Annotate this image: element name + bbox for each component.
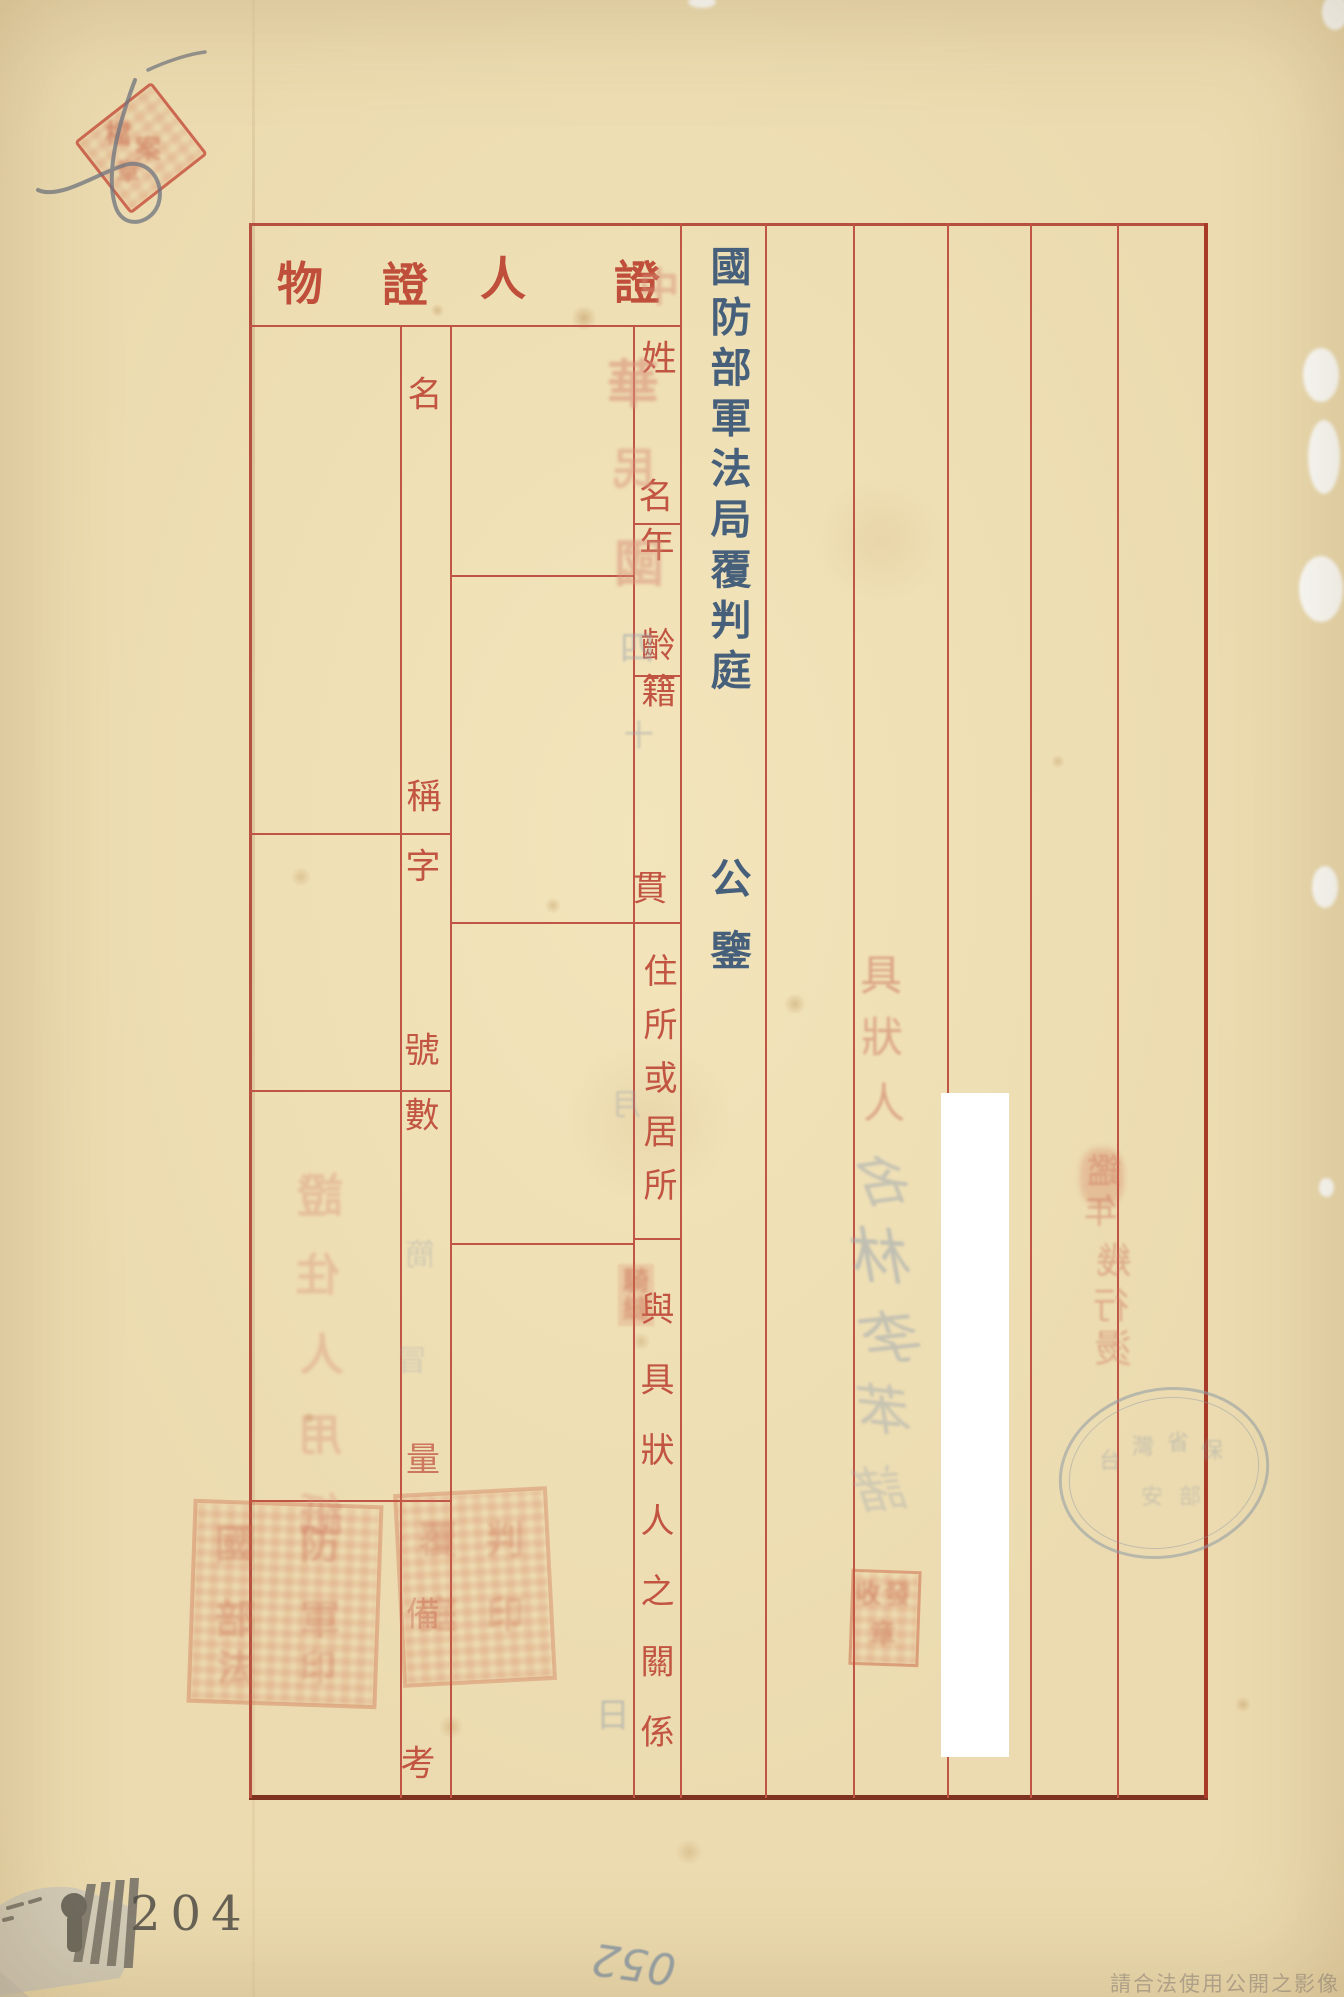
glyph: 台 [1099, 1451, 1121, 1473]
column-line [765, 223, 767, 1798]
age-spot [544, 898, 562, 913]
paper-damage [1308, 420, 1340, 494]
glyph: 冒 [397, 1347, 427, 1377]
glyph: 人 [863, 1083, 905, 1125]
glyph: 鑑 [1087, 1155, 1121, 1189]
paper-damage [1299, 556, 1343, 622]
court-salutation: 公鑒 [706, 857, 747, 1001]
glyph: 證 [382, 262, 428, 308]
label-tick [633, 523, 682, 525]
glyph: 判 [486, 1521, 524, 1559]
glyph: 證 [297, 1173, 343, 1219]
glyph: 部 [1179, 1487, 1201, 1509]
age-stain [810, 480, 950, 600]
column-line [400, 325, 402, 1798]
glyph: 幾 [1096, 1244, 1132, 1280]
glyph: 縫 [623, 1297, 649, 1323]
glyph: 部 [215, 1600, 255, 1640]
fold-crease [252, 0, 255, 1997]
glyph: 物 [277, 261, 323, 307]
glyph: 稱 [406, 781, 441, 816]
glyph: 灣 [1132, 1437, 1154, 1459]
glyph: 號 [404, 1035, 439, 1070]
glyph: 行 [1093, 1289, 1129, 1325]
column-line [450, 325, 452, 1798]
glyph: 四 [620, 632, 654, 666]
row-line [250, 1500, 452, 1502]
glyph: 量 [406, 1443, 440, 1477]
glyph: 住 [296, 1254, 340, 1298]
header-underline [250, 325, 682, 327]
glyph: 省 [1167, 1433, 1189, 1455]
glyph: 名 [857, 1152, 918, 1213]
glyph: 年 [1084, 1195, 1118, 1229]
label-tick [633, 1238, 682, 1240]
copyright-watermark: 請合法使用公開之影像 [1110, 1968, 1340, 1997]
glyph: 李 [864, 1306, 928, 1370]
glyph: 印 [486, 1596, 524, 1634]
glyph: 騎 [623, 1269, 649, 1295]
column-line [1117, 223, 1119, 1798]
glyph: 月 [611, 1091, 641, 1121]
glyph: 燙 [1094, 1330, 1132, 1368]
paper-damage [1303, 348, 1339, 402]
glyph: 日 [596, 1699, 630, 1733]
glyph: 安 [1141, 1487, 1163, 1509]
paper-damage [1312, 866, 1338, 908]
handwritten-number: 052 [589, 1932, 679, 1994]
row-line [250, 833, 452, 835]
handwritten-squiggle [20, 40, 240, 260]
glyph: 考 [400, 1748, 435, 1783]
age-spot [1234, 1697, 1252, 1712]
age-spot [430, 304, 445, 317]
court-title: 國防部軍法局覆判庭 [706, 245, 747, 700]
paper-damage [1322, 0, 1344, 30]
glyph: 林 [853, 1226, 917, 1290]
glyph: 發 [885, 1582, 911, 1608]
glyph: 數 [404, 1100, 439, 1135]
glyph: 具 [860, 955, 902, 997]
seal-stamp-large-mid [393, 1486, 557, 1688]
age-spot [1050, 755, 1066, 768]
row-line [450, 922, 682, 924]
row-line [250, 1090, 452, 1092]
table-border-bottom [249, 1795, 1208, 1800]
glyph: 國 [614, 539, 664, 589]
glyph: 章 [870, 1622, 896, 1648]
relationship-label: 與具狀人之關係 [637, 1291, 671, 1785]
glyph: 籍 [641, 676, 676, 711]
glyph: 國 [215, 1525, 255, 1565]
glyph: 中 [639, 268, 679, 308]
paper-damage [1319, 1178, 1334, 1197]
oval-office-stamp-inner-ring [1055, 1380, 1274, 1567]
glyph: 法 [217, 1650, 253, 1686]
glyph: 苯 [858, 1382, 917, 1441]
glyph: 諸 [857, 1463, 911, 1517]
row-line [450, 1243, 635, 1245]
row-line [450, 575, 635, 577]
glyph: 覆 [419, 1521, 457, 1559]
glyph: 字 [405, 851, 440, 886]
glyph: 人 [300, 1334, 344, 1378]
age-spot [674, 1840, 704, 1864]
glyph: 狀 [861, 1017, 903, 1059]
glyph: 十 [624, 722, 654, 752]
table-border-right [1204, 223, 1208, 1798]
glyph: 簡 [405, 1241, 435, 1271]
glyph: 華 [607, 360, 659, 412]
glyph: 軍 [300, 1600, 340, 1640]
glyph: 貫 [632, 873, 667, 908]
glyph: 防 [300, 1525, 340, 1565]
age-spot [290, 868, 312, 886]
paper-damage [688, 0, 716, 8]
column-line [853, 223, 855, 1798]
column-line [1030, 223, 1032, 1798]
redaction-overlay [941, 1093, 1009, 1757]
page-number: 204 [130, 1886, 252, 1942]
glyph: 名 [407, 379, 442, 414]
glyph: 人 [480, 256, 526, 302]
glyph: 收 [855, 1582, 881, 1608]
residence-label: 住所或居所 [640, 953, 674, 1221]
column-line [680, 223, 682, 1798]
glyph: 庭 [419, 1596, 457, 1634]
table-border-top [249, 223, 1208, 226]
oval-office-stamp [1043, 1368, 1286, 1578]
document-page: 國防部軍法局覆判庭 公鑒 住所或居所 與具狀人之關係 物證人證 名稱字號數量備考… [0, 0, 1344, 1997]
age-spot [783, 994, 807, 1014]
glyph: 印 [300, 1650, 336, 1686]
glyph: 保 [1201, 1441, 1223, 1463]
glyph: 民 [611, 448, 655, 492]
glyph: 用 [298, 1414, 342, 1458]
